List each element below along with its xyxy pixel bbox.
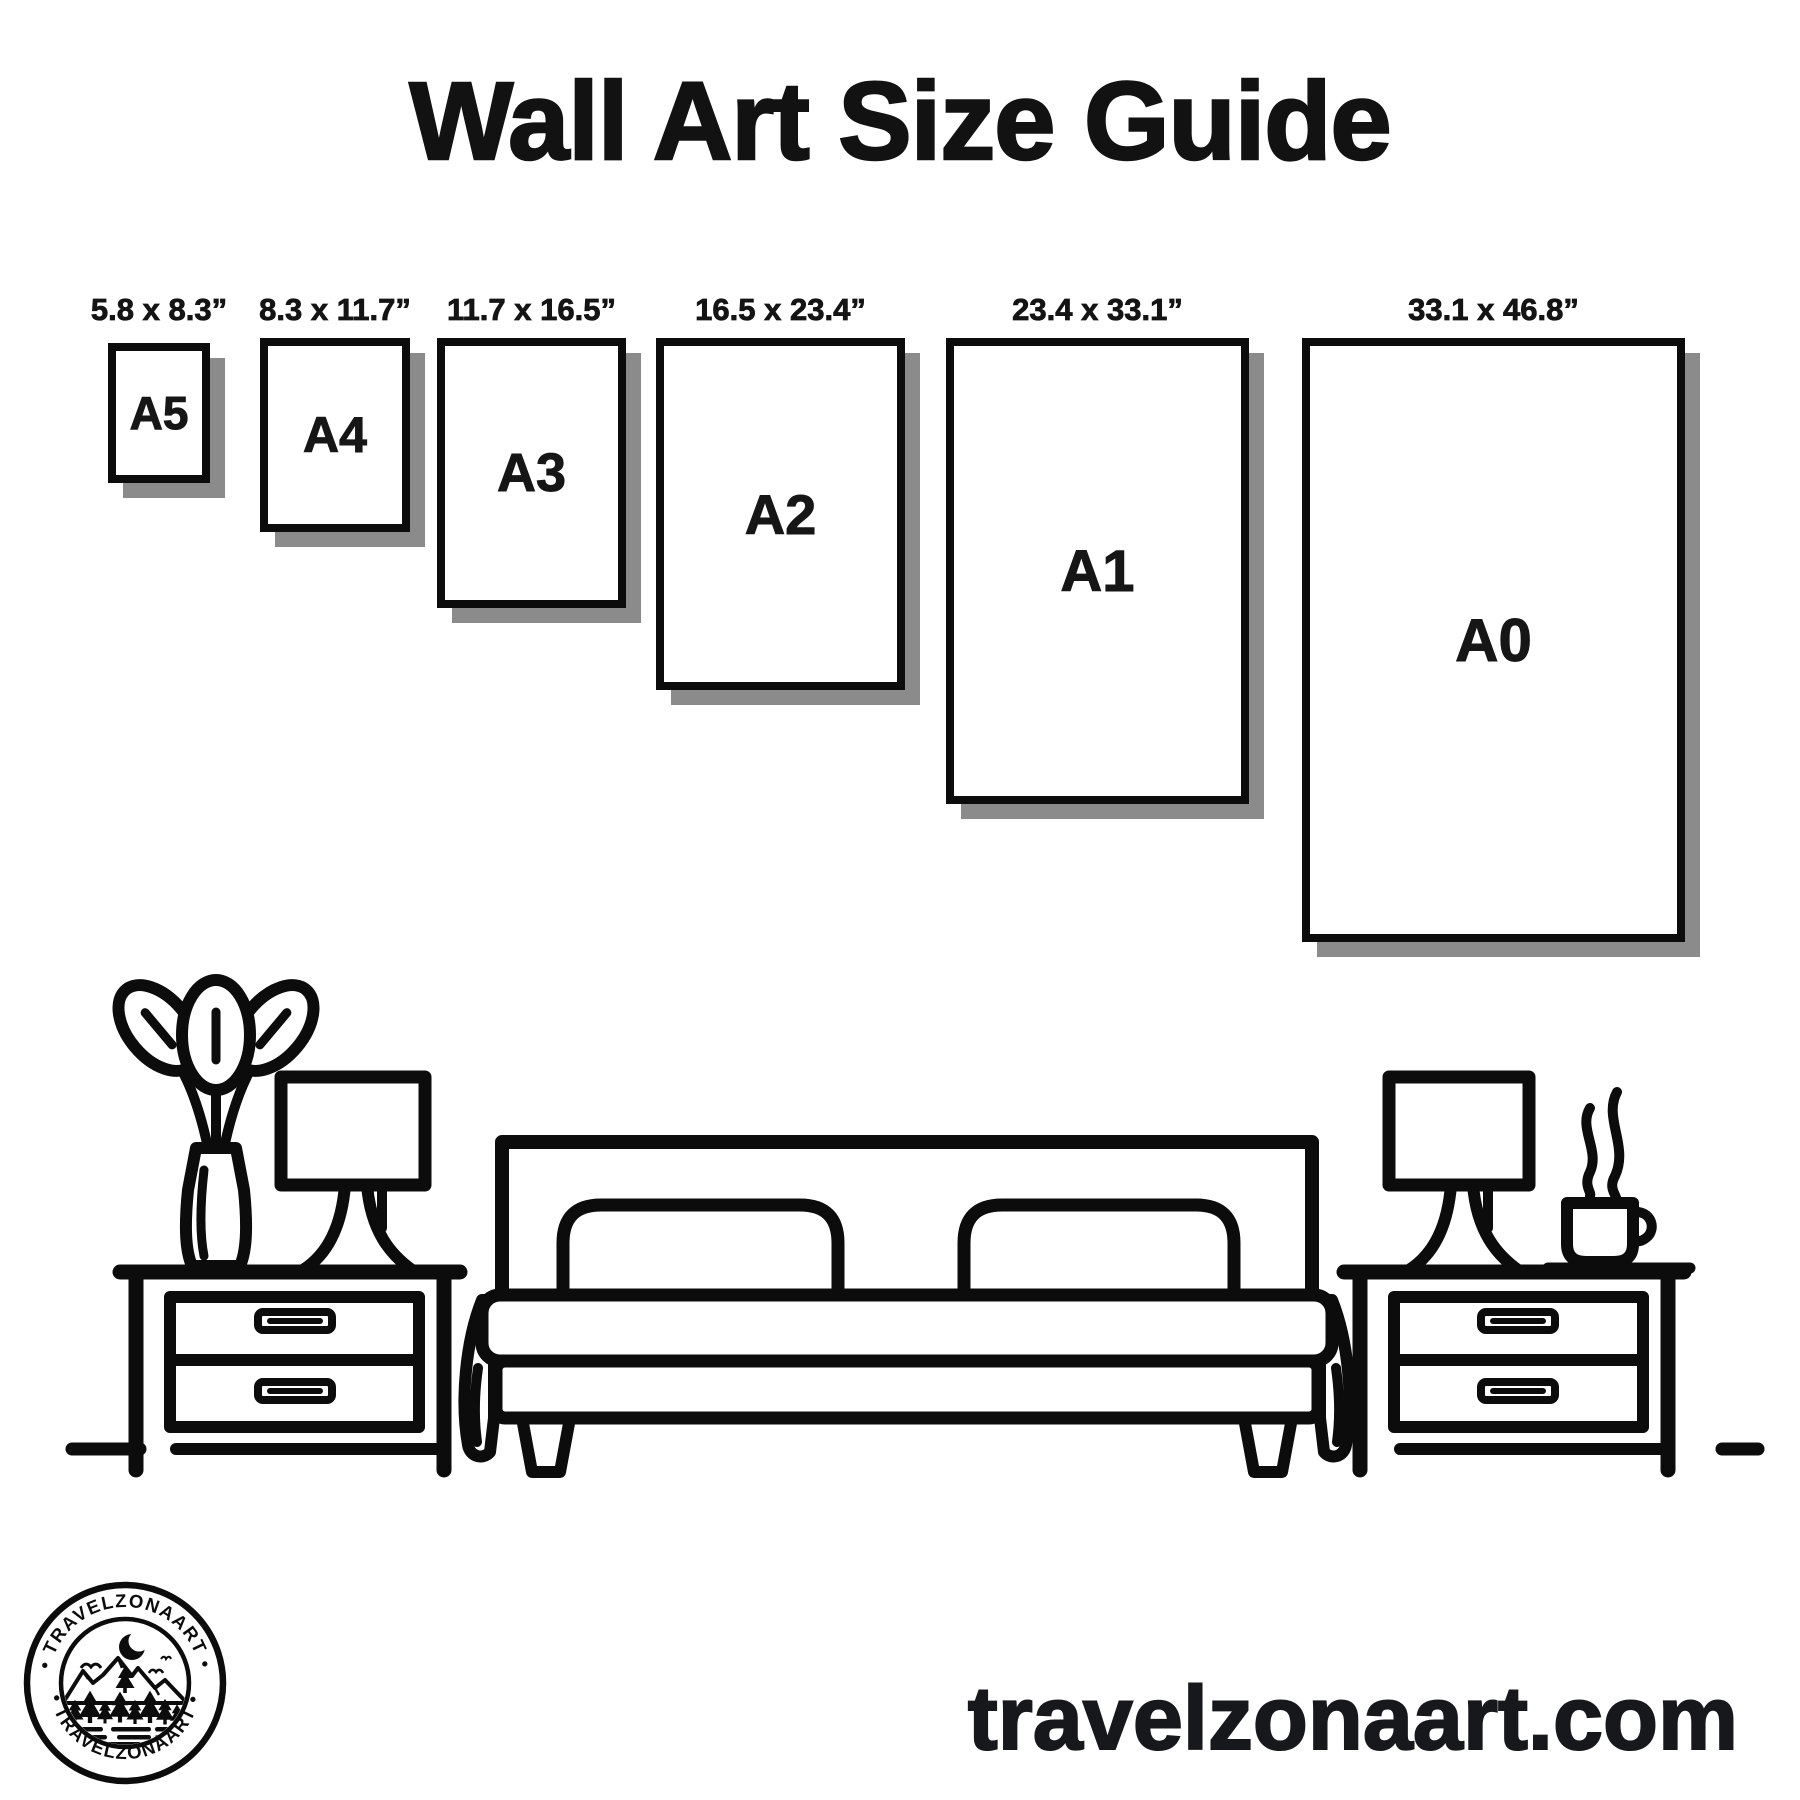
wall-art-size-guide-poster: Wall Art Size Guide 5.8 x 8.3” A5 8.3 x … (0, 0, 1800, 1800)
bed-frame (496, 1361, 1318, 1418)
bedroom-scene-illustration (0, 0, 1800, 1800)
pillow-icon (964, 1205, 1234, 1298)
table-lamp-left-icon (281, 1077, 425, 1270)
logo-text-top: • TRAVELZONAART • (33, 1590, 216, 1671)
coffee-cup-icon (1548, 1092, 1690, 1268)
bed-leg (1244, 1418, 1292, 1472)
moon-icon (129, 1631, 150, 1652)
brand-logo: • TRAVELZONAART • • TRAVELZONAART • (20, 1578, 230, 1788)
website-url: travelzonaart.com (968, 1668, 1738, 1771)
bed-leg (522, 1418, 570, 1472)
steam-icon (1586, 1108, 1592, 1196)
nightstand-right-icon (1344, 1272, 1684, 1470)
mattress (482, 1295, 1332, 1361)
nightstand-left-icon (120, 1272, 460, 1470)
table-lamp-right-icon (1389, 1077, 1529, 1270)
double-bed-icon (464, 1142, 1349, 1472)
pillow-icon (563, 1205, 838, 1298)
steam-icon (1612, 1092, 1619, 1202)
